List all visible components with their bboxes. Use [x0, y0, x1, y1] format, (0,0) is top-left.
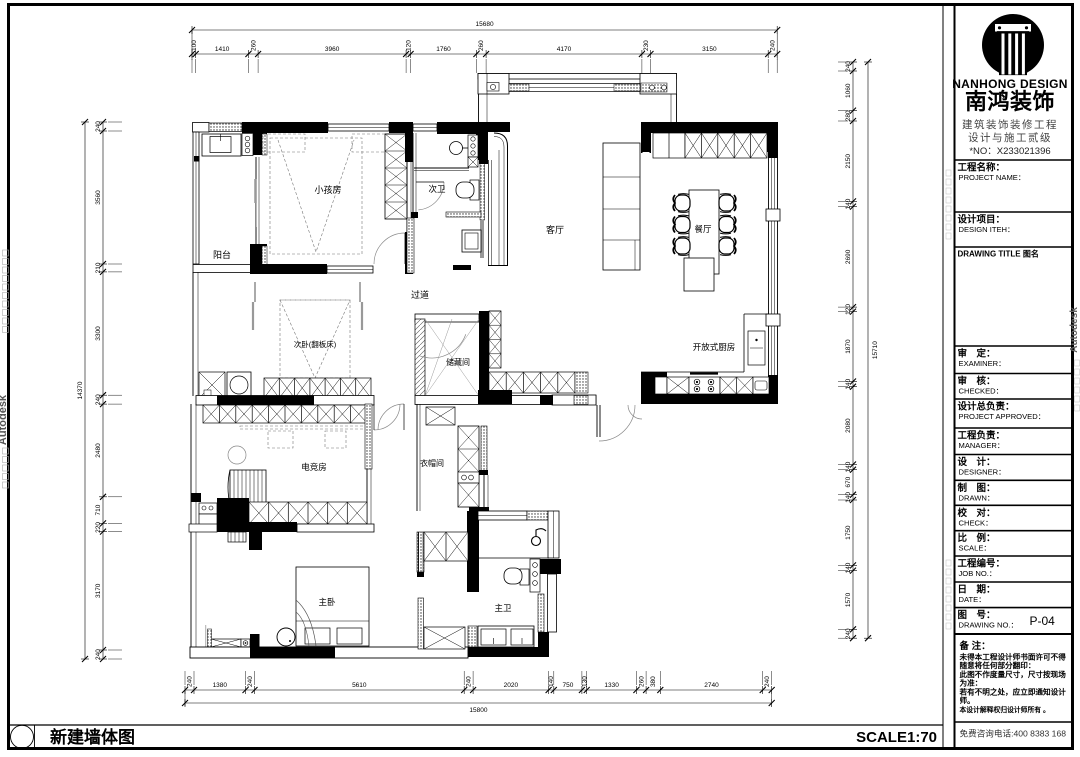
- svg-text:JOB NO.：: JOB NO.：: [959, 569, 997, 578]
- svg-text:240: 240: [95, 121, 102, 132]
- svg-text:Autodesk: Autodesk: [0, 394, 9, 445]
- svg-text:120: 120: [405, 40, 412, 51]
- svg-text:工程负责：: 工程负责：: [958, 430, 1006, 442]
- svg-text:DESIGNER：: DESIGNER：: [959, 468, 1006, 477]
- svg-text:主卫: 主卫: [494, 603, 512, 613]
- svg-text:3960: 3960: [325, 46, 340, 53]
- svg-text:1410: 1410: [215, 46, 230, 53]
- svg-text:为准：: 为准：: [960, 678, 983, 688]
- svg-text:DRAWING TITLE 图名: DRAWING TITLE 图名: [958, 249, 1039, 259]
- svg-text:240: 240: [186, 676, 193, 687]
- svg-text:审 定：: 审 定：: [958, 348, 996, 360]
- svg-text:1330: 1330: [604, 682, 619, 689]
- svg-text:15710: 15710: [872, 341, 879, 359]
- svg-text:140: 140: [845, 198, 852, 209]
- svg-text:2150: 2150: [845, 154, 852, 169]
- svg-text:130: 130: [581, 676, 588, 687]
- svg-text:120: 120: [845, 304, 852, 315]
- svg-text:240: 240: [845, 628, 852, 639]
- svg-text:1380: 1380: [213, 682, 228, 689]
- svg-text:2080: 2080: [845, 418, 852, 433]
- svg-text:140: 140: [845, 378, 852, 389]
- svg-text:2480: 2480: [95, 443, 102, 458]
- svg-text:670: 670: [845, 476, 852, 487]
- svg-text:MANAGER：: MANAGER：: [959, 441, 1005, 450]
- svg-text:750: 750: [562, 682, 573, 689]
- svg-text:南鸿装饰: 南鸿装饰: [965, 89, 1055, 114]
- svg-text:4170: 4170: [557, 46, 572, 53]
- svg-text:设计项目：: 设计项目：: [958, 214, 1006, 226]
- svg-text:免费咨询电话:400 8383 168: 免费咨询电话:400 8383 168: [960, 728, 1067, 739]
- svg-text:若有不明之处，应立即通知设计: 若有不明之处，应立即通知设计: [959, 686, 1067, 696]
- svg-text:衣帽间: 衣帽间: [420, 458, 444, 468]
- svg-text:未得本工程设计师书面许可不得: 未得本工程设计师书面许可不得: [960, 652, 1067, 662]
- svg-text:DRAWN：: DRAWN：: [959, 493, 995, 502]
- svg-text:DATE：: DATE：: [959, 595, 986, 604]
- svg-text:1760: 1760: [436, 46, 451, 53]
- svg-text:日 期：: 日 期：: [958, 584, 996, 596]
- svg-text:140: 140: [845, 461, 852, 472]
- svg-text:1870: 1870: [845, 339, 852, 354]
- svg-text:备 注：: 备 注：: [959, 640, 991, 652]
- svg-text:*NO：X233021396: *NO：X233021396: [969, 146, 1050, 157]
- svg-text:制 图：: 制 图：: [958, 482, 996, 494]
- svg-text:PROJECT APPROVED：: PROJECT APPROVED：: [959, 412, 1046, 421]
- svg-text:2690: 2690: [845, 249, 852, 264]
- svg-text:3560: 3560: [95, 190, 102, 205]
- svg-text:240: 240: [764, 676, 771, 687]
- svg-text:1570: 1570: [845, 592, 852, 607]
- svg-text:CHECK：: CHECK：: [959, 518, 993, 527]
- svg-text:EXAMINER：: EXAMINER：: [959, 359, 1006, 368]
- svg-text:建筑装饰装修工程: 建筑装饰装修工程: [962, 118, 1058, 131]
- svg-text:CHECKED：: CHECKED：: [959, 387, 1004, 396]
- svg-text:14370: 14370: [77, 381, 84, 399]
- svg-text:210: 210: [95, 262, 102, 273]
- svg-text:240: 240: [247, 676, 254, 687]
- svg-text:比 例：: 比 例：: [958, 532, 996, 544]
- svg-text:140: 140: [845, 562, 852, 573]
- svg-text:次卫: 次卫: [428, 184, 446, 194]
- svg-text:220: 220: [95, 522, 102, 533]
- svg-text:新建墙体图: 新建墙体图: [50, 727, 135, 747]
- svg-text:设计总负责：: 设计总负责：: [958, 401, 1015, 413]
- svg-text:设 计：: 设 计：: [958, 456, 996, 468]
- svg-text:工程名称：: 工程名称：: [958, 162, 1006, 174]
- svg-text:师。: 师。: [960, 695, 975, 705]
- svg-text:260: 260: [478, 40, 485, 51]
- svg-text:280: 280: [845, 110, 852, 121]
- svg-text:客厅: 客厅: [546, 224, 564, 235]
- svg-text:小孩房: 小孩房: [314, 184, 341, 195]
- svg-text:餐厅: 餐厅: [694, 224, 712, 234]
- svg-text:230: 230: [643, 40, 650, 51]
- svg-text:SCALE：: SCALE：: [959, 544, 992, 553]
- svg-text:P-04: P-04: [1030, 614, 1056, 628]
- svg-text:2020: 2020: [504, 682, 519, 689]
- svg-text:校 对：: 校 对：: [958, 507, 996, 519]
- svg-text:3150: 3150: [702, 46, 717, 53]
- svg-text:15800: 15800: [469, 707, 487, 714]
- svg-text:审 核：: 审 核：: [958, 375, 996, 387]
- svg-text:240: 240: [466, 676, 473, 687]
- svg-text:储藏间: 储藏间: [446, 357, 470, 367]
- svg-text:DRAWING NO.：: DRAWING NO.：: [959, 621, 1019, 630]
- svg-text:140: 140: [845, 492, 852, 503]
- svg-text:240: 240: [95, 394, 102, 405]
- svg-text:SCALE1:70: SCALE1:70: [856, 729, 937, 746]
- svg-text:1060: 1060: [845, 83, 852, 98]
- svg-text:次卧(翻板床): 次卧(翻板床): [294, 339, 337, 349]
- svg-text:3300: 3300: [95, 326, 102, 341]
- svg-text:图 号：: 图 号：: [958, 610, 996, 621]
- svg-text:2740: 2740: [704, 682, 719, 689]
- svg-text:Autodesk: Autodesk: [1069, 307, 1080, 353]
- svg-text:阳台: 阳台: [213, 249, 231, 260]
- svg-text:工程编号：: 工程编号：: [958, 558, 1006, 570]
- svg-text:380: 380: [650, 676, 657, 687]
- svg-text:电竞房: 电竞房: [301, 462, 327, 472]
- svg-text:随意将任何部分翻印：: 随意将任何部分翻印：: [960, 660, 1036, 670]
- svg-text:140: 140: [548, 676, 555, 687]
- svg-text:开放式厨房: 开放式厨房: [693, 342, 736, 352]
- svg-text:此图不作度量尺寸，尺寸按现场: 此图不作度量尺寸，尺寸按现场: [960, 669, 1067, 679]
- svg-text:本设计解释权归设计师所有 。: 本设计解释权归设计师所有 。: [960, 705, 1050, 714]
- svg-text:1750: 1750: [845, 525, 852, 540]
- svg-text:DESIGN ITEH：: DESIGN ITEH：: [959, 225, 1015, 234]
- svg-text:260: 260: [638, 676, 645, 687]
- svg-text:260: 260: [250, 40, 257, 51]
- svg-text:240: 240: [845, 61, 852, 72]
- svg-text:240: 240: [770, 40, 777, 51]
- svg-text:设计与施工贰级: 设计与施工贰级: [968, 131, 1052, 144]
- svg-text:240: 240: [95, 649, 102, 660]
- svg-text:5610: 5610: [352, 682, 367, 689]
- svg-text:主卧: 主卧: [318, 597, 336, 607]
- svg-text:PROJECT NAME：: PROJECT NAME：: [959, 173, 1026, 182]
- svg-text:710: 710: [95, 504, 102, 515]
- svg-text:3170: 3170: [95, 583, 102, 598]
- svg-text:15680: 15680: [476, 21, 494, 28]
- svg-text:过道: 过道: [411, 289, 429, 300]
